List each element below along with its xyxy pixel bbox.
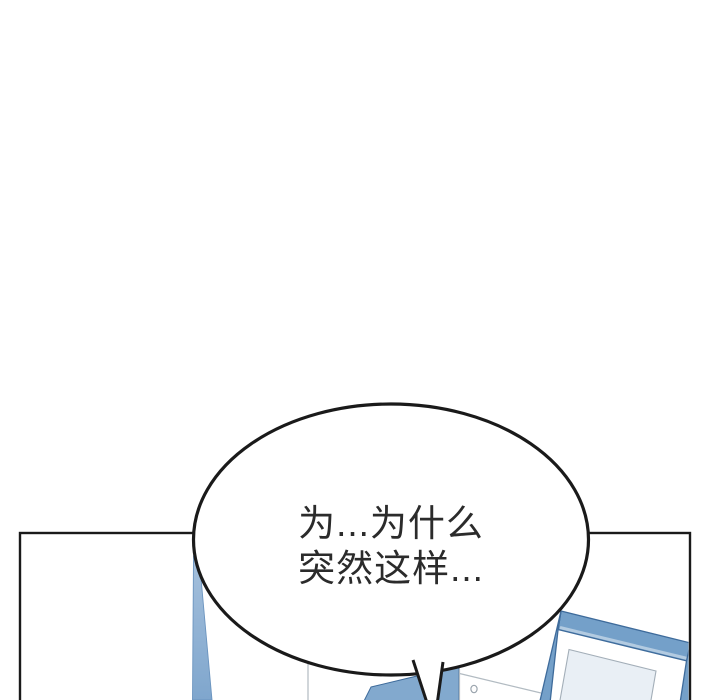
- comic-page: 为...为什么 突然这样...: [0, 0, 720, 700]
- comic-panel-artwork: [0, 0, 720, 700]
- speech-bubble: [194, 404, 589, 675]
- cabinet-knob: [471, 685, 477, 692]
